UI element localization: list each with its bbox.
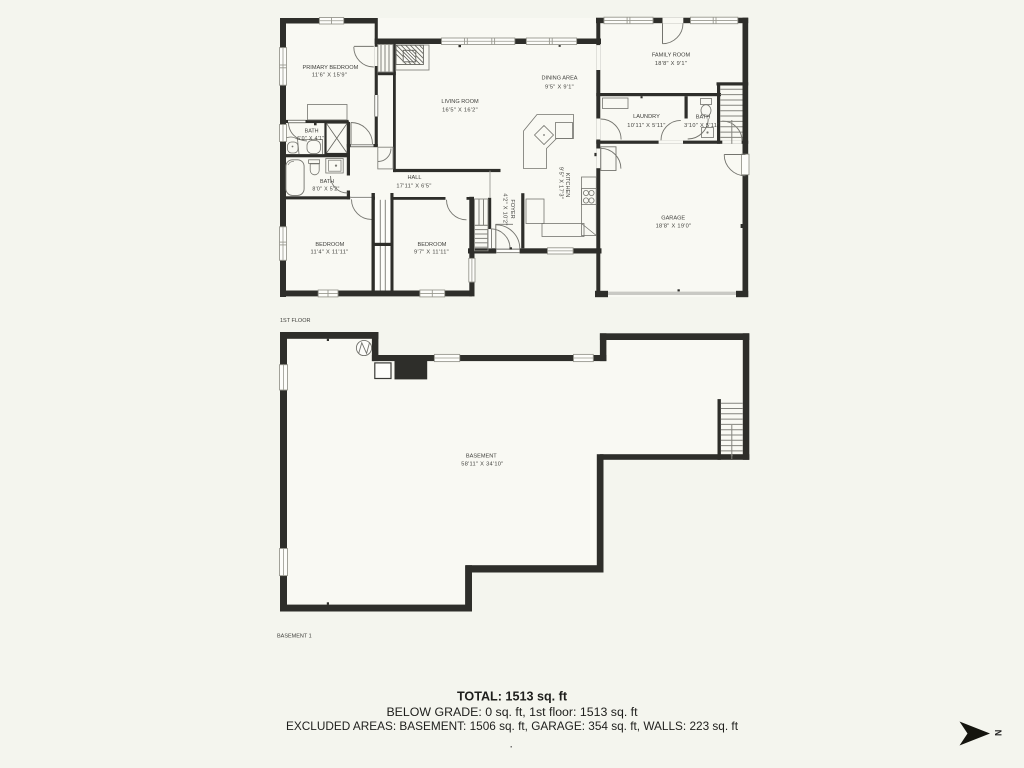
svg-text:N: N [993, 730, 1003, 736]
svg-text:9'7" X 11'11": 9'7" X 11'11" [414, 250, 449, 256]
svg-text:HALL: HALL [408, 175, 422, 181]
svg-text:11'4" X 11'11": 11'4" X 11'11" [311, 250, 349, 256]
svg-text:3'10" X 5'11": 3'10" X 5'11" [684, 123, 719, 129]
svg-text:1ST FLOOR: 1ST FLOOR [280, 318, 310, 324]
svg-text:BATH: BATH [320, 179, 334, 185]
svg-text:BELOW GRADE: 0 sq. ft, 1st flo: BELOW GRADE: 0 sq. ft, 1st floor: 1513 s… [386, 705, 638, 719]
svg-text:16'5" X 16'2": 16'5" X 16'2" [442, 107, 478, 113]
svg-text:58'11" X 34'10": 58'11" X 34'10" [461, 461, 503, 467]
svg-text:10'11" X 5'11": 10'11" X 5'11" [627, 123, 665, 129]
svg-text:9'5" X 9'1": 9'5" X 9'1" [545, 84, 574, 90]
svg-text:BATH: BATH [696, 115, 711, 121]
svg-text:BATH: BATH [305, 128, 319, 134]
svg-text:KITCHEN: KITCHEN [564, 173, 570, 198]
svg-text:BEDROOM: BEDROOM [418, 242, 447, 248]
svg-text:18'8" X 9'1": 18'8" X 9'1" [655, 61, 687, 67]
svg-text:11'6" X 15'9": 11'6" X 15'9" [312, 73, 347, 79]
svg-text:18'8" X 19'0": 18'8" X 19'0" [656, 224, 692, 230]
svg-text:FAMILY ROOM: FAMILY ROOM [652, 53, 691, 59]
svg-text:FOYER: FOYER [509, 199, 515, 218]
svg-text:BEDROOM: BEDROOM [315, 242, 344, 248]
svg-text:LAUNDRY: LAUNDRY [633, 114, 660, 120]
svg-text:PRIMARY BEDROOM: PRIMARY BEDROOM [303, 65, 359, 71]
svg-text:8'0" X 5'2": 8'0" X 5'2" [312, 187, 339, 193]
svg-text:LIVING ROOM: LIVING ROOM [441, 99, 479, 105]
svg-text:EXCLUDED AREAS: BASEMENT: 1506: EXCLUDED AREAS: BASEMENT: 1506 sq. ft, G… [286, 719, 739, 733]
svg-text:GARAGE: GARAGE [661, 215, 685, 221]
svg-text:BASEMENT: BASEMENT [466, 453, 497, 459]
svg-text:4'2" X 10'2": 4'2" X 10'2" [501, 193, 507, 225]
svg-text:BASEMENT 1: BASEMENT 1 [277, 633, 312, 639]
svg-text:9'5" X 17'3": 9'5" X 17'3" [558, 167, 564, 199]
svg-text:DINING AREA: DINING AREA [541, 76, 577, 82]
svg-text:TOTAL: 1513 sq. ft: TOTAL: 1513 sq. ft [457, 689, 568, 703]
svg-text:17'11" X 6'5": 17'11" X 6'5" [396, 184, 431, 190]
svg-text:6'0" X 4'1": 6'0" X 4'1" [297, 136, 324, 142]
